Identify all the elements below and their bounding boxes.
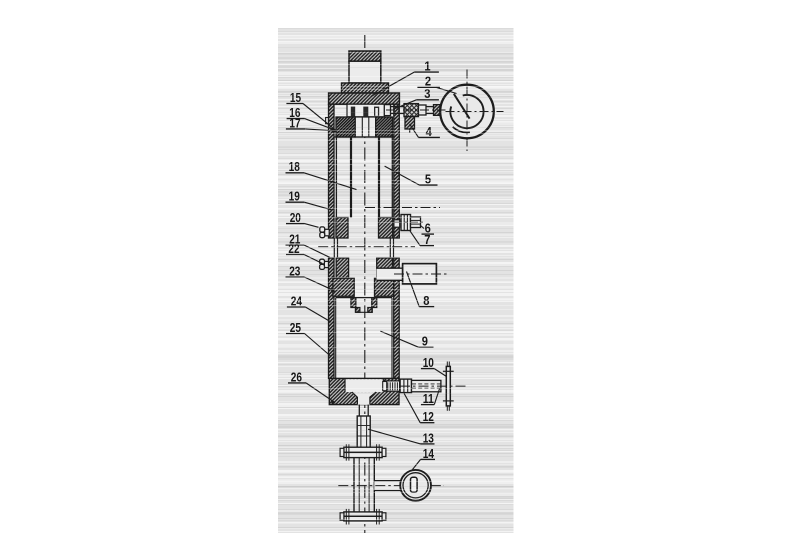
- svg-text:10: 10: [423, 356, 434, 370]
- svg-text:9: 9: [422, 335, 428, 349]
- svg-text:1: 1: [424, 60, 430, 74]
- svg-text:11: 11: [423, 392, 434, 406]
- svg-text:26: 26: [291, 370, 302, 384]
- svg-text:4: 4: [426, 125, 432, 139]
- svg-text:18: 18: [289, 160, 300, 174]
- svg-text:14: 14: [423, 447, 434, 461]
